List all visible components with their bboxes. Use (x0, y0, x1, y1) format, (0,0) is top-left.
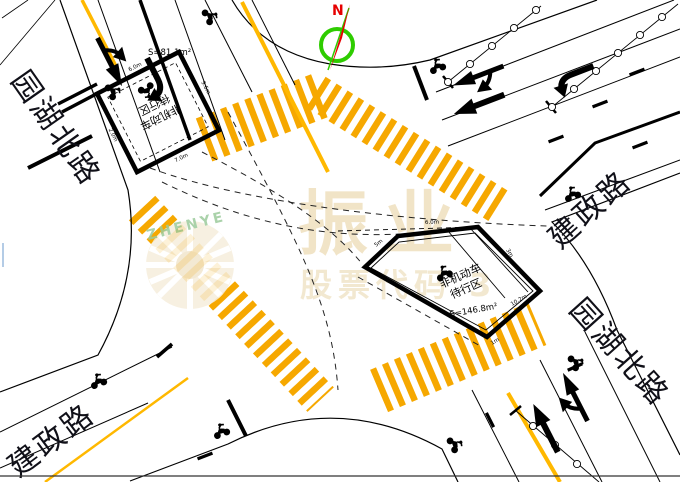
moto-icon (210, 421, 231, 440)
yellow-line (82, 0, 118, 70)
watermark-brand: 振业 (298, 183, 470, 265)
crosswalk-north (196, 73, 330, 161)
corner-arc-south (130, 418, 458, 482)
arrow-straight-left (91, 30, 138, 89)
dim-label: 6.0m (425, 220, 439, 226)
median-end (228, 400, 246, 436)
road-label-yuanhu-top: 园湖北路 (3, 65, 107, 193)
road-label-yuanhu-bottom: 园湖北路 (562, 292, 676, 414)
guardrail-lower (546, 4, 678, 113)
moto-icon (426, 56, 447, 75)
moto-icon (200, 5, 220, 26)
road-label-jianzheng-right: 建政路 (542, 164, 639, 256)
compass-north-arrow: N (321, 3, 353, 70)
area-label-north: S=81.1m² (148, 48, 191, 58)
area-label-east: S=146.8m² (449, 302, 499, 320)
corner-arc-north (232, 0, 597, 67)
stop-line-west (157, 344, 172, 357)
intersection-plan-canvas: ZHENYE 振业 股票代码 3 (0, 0, 680, 482)
stop-line-east (414, 66, 427, 100)
road-label-jianzheng-left: 建政路 (2, 397, 102, 482)
compass-north-label: N (332, 3, 344, 19)
guardrail-upper (443, 6, 541, 88)
arrow-straight (451, 87, 507, 121)
intersection-drawing: ZHENYE 振业 股票代码 3 (0, 0, 680, 482)
moto-icon (445, 433, 465, 454)
